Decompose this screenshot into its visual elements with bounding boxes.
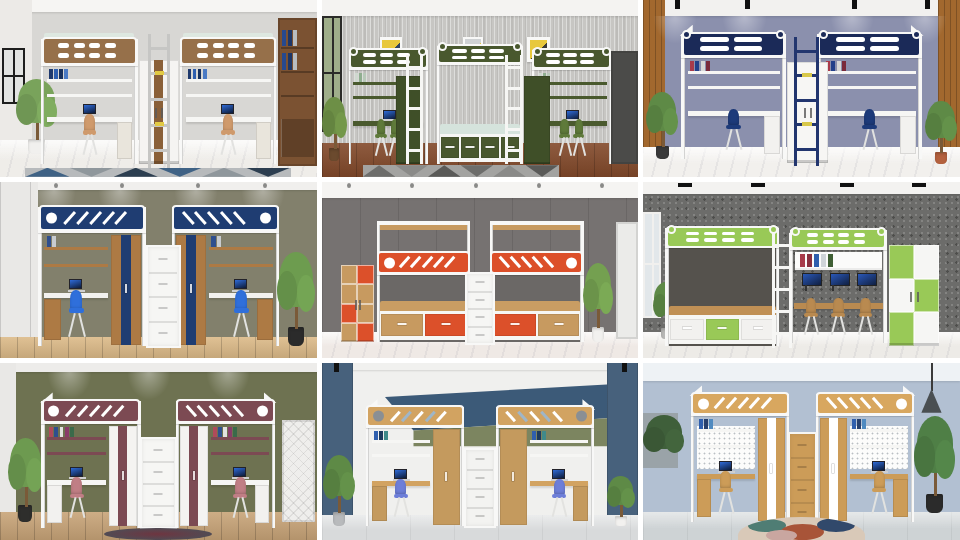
guard-slat <box>471 56 485 60</box>
ceiling-light-bar <box>751 183 765 187</box>
guard-slat <box>58 43 69 48</box>
rug-triangle <box>69 168 113 177</box>
stair-drawers <box>466 450 494 526</box>
guard-slat <box>401 410 412 421</box>
bed-guard-panel <box>492 253 581 272</box>
plant-pot <box>935 152 948 165</box>
bed-rail <box>176 421 276 424</box>
desk-cabinet <box>900 116 916 154</box>
guard-slat <box>546 53 559 57</box>
chair-back <box>223 114 234 132</box>
ceiling-light-bar <box>840 183 854 187</box>
stair-handle <box>154 471 163 473</box>
chair-leg <box>862 129 869 150</box>
potted-plant <box>643 415 684 475</box>
book-spine <box>217 236 221 247</box>
chair-leg <box>389 137 396 156</box>
built-in-wardrobe <box>433 429 460 524</box>
bed-guard-panel <box>174 207 276 229</box>
book-spine <box>54 427 58 437</box>
book-spine <box>842 61 846 71</box>
guard-slat <box>76 211 89 225</box>
rug-triangle <box>25 168 69 177</box>
stair-handle <box>159 258 168 260</box>
guard-slat <box>88 405 100 418</box>
shelf-line <box>281 95 314 97</box>
wardrobe-door <box>341 265 358 284</box>
loft-bed-unit <box>41 401 141 527</box>
built-in-wardrobe <box>758 418 785 521</box>
potted-plant <box>925 101 957 165</box>
ceiling-spotlight <box>334 363 339 372</box>
bed-drawer <box>741 319 774 340</box>
drawer-handle <box>554 323 563 325</box>
chair-leg <box>561 497 568 517</box>
plant-foliage <box>914 436 935 477</box>
guard-slat <box>213 53 224 58</box>
guard-slat <box>700 46 729 51</box>
book-spine <box>800 254 805 267</box>
lamp-cord <box>931 363 933 390</box>
guard-slat <box>74 43 85 48</box>
guard-slat <box>734 46 763 51</box>
laptop-screen <box>221 104 234 114</box>
hutch-shelf <box>47 79 132 82</box>
guard-slat <box>89 53 100 58</box>
hutch-shelf <box>47 452 106 455</box>
bed-drawer <box>425 314 467 336</box>
ladder-rung <box>406 128 423 131</box>
laptop-screen <box>233 467 246 477</box>
ladder-rung <box>505 87 522 90</box>
chair-back <box>235 290 247 309</box>
guard-slat <box>197 405 209 418</box>
book-spine <box>203 69 207 79</box>
render-thumbnail-8 <box>322 363 639 540</box>
book-spine <box>49 427 53 437</box>
bed-rail <box>377 272 470 275</box>
book-spine <box>542 431 546 440</box>
guard-slat <box>580 53 593 57</box>
door <box>616 222 638 339</box>
plant-foliage <box>621 488 635 508</box>
book-spine <box>282 53 286 69</box>
chair-leg <box>382 137 389 156</box>
stair-handle <box>154 449 163 451</box>
book-spine <box>831 61 835 71</box>
chair-back <box>575 119 584 135</box>
rug-triangle <box>246 168 290 177</box>
drawer-handle <box>441 323 450 325</box>
shelf-line <box>281 47 314 49</box>
bed-guard-panel <box>44 401 139 421</box>
guard-slat <box>105 43 116 48</box>
chair-back <box>70 290 82 309</box>
bed-drawer <box>481 137 499 159</box>
bed-rail <box>790 247 887 250</box>
chair-back <box>395 479 406 496</box>
chair-leg <box>735 129 742 150</box>
guard-slat <box>541 410 552 421</box>
potted-plant <box>583 263 613 343</box>
guard-slat <box>686 232 699 236</box>
loft-bed-unit <box>790 230 887 343</box>
built-in-wardrobe <box>111 235 141 345</box>
book-spine <box>828 254 833 267</box>
book-spine <box>233 427 237 437</box>
loft-bed-unit <box>665 228 779 345</box>
stair-drawers <box>148 247 179 346</box>
stair-step-line <box>149 296 178 298</box>
bed-guard-panel <box>820 34 919 55</box>
guard-slat <box>529 410 540 421</box>
guard-slat <box>506 410 517 421</box>
bed-rail <box>817 55 921 58</box>
guard-slat <box>854 240 865 244</box>
drawer-handle <box>485 146 494 148</box>
stair-step-line <box>149 321 178 323</box>
hutch-shelf <box>211 437 270 440</box>
guard-ring <box>819 30 828 39</box>
ladder-rung <box>406 107 423 110</box>
bed-frame-post <box>377 221 380 342</box>
chair-leg <box>804 316 811 335</box>
guard-slat <box>854 233 865 237</box>
chair-seat <box>726 125 741 129</box>
guard-slat <box>700 37 729 42</box>
book-spine <box>837 61 841 71</box>
book-spine <box>852 419 856 429</box>
guard-slat <box>220 211 233 225</box>
plant-pot <box>18 505 32 522</box>
chair-seat <box>552 494 566 498</box>
guard-slat <box>563 60 576 64</box>
chair-leg <box>573 137 580 156</box>
plant-pot <box>333 512 346 526</box>
ladder <box>794 37 819 166</box>
guard-slat <box>686 238 699 242</box>
stair-step-line <box>791 502 814 504</box>
plant-trunk <box>934 471 937 496</box>
ladder-rung <box>794 148 819 151</box>
book-spine <box>706 61 710 71</box>
guard-circle <box>384 257 395 268</box>
chair-leg <box>233 313 241 336</box>
plant-foliage <box>340 472 355 500</box>
wardrobe <box>889 245 940 346</box>
chair-leg <box>718 492 725 514</box>
chair-seat <box>719 488 733 492</box>
ladder-rung <box>148 98 170 101</box>
book-spine <box>532 431 536 440</box>
book-spine <box>709 419 713 429</box>
render-thumbnail-3 <box>643 0 960 177</box>
render-thumbnail-7 <box>0 363 317 540</box>
stair-drawers <box>790 434 815 524</box>
book-spine <box>64 69 68 79</box>
book-spine <box>821 254 826 267</box>
guard-slat <box>546 60 559 64</box>
chair-leg <box>68 313 76 336</box>
book-spine <box>690 61 694 71</box>
plant-foliage <box>925 113 941 140</box>
stair-drawers <box>467 274 492 344</box>
guard-slat <box>436 410 447 421</box>
hutch-shelf <box>47 437 106 440</box>
stair-handle <box>154 514 163 516</box>
chair-leg <box>858 316 865 335</box>
guard-ring <box>912 30 921 39</box>
chair-leg <box>558 137 565 156</box>
guard-slat <box>181 211 194 225</box>
potted-plant <box>323 455 355 526</box>
render-thumbnail-2 <box>322 0 639 177</box>
plant-foliage <box>322 110 335 137</box>
guard-slat <box>65 405 77 418</box>
chair-leg <box>831 316 838 335</box>
hutch-shelf <box>530 440 588 443</box>
bed-drawer <box>381 314 423 336</box>
bed-rail <box>180 63 277 66</box>
guard-slat <box>543 256 555 269</box>
book-spine <box>695 61 699 71</box>
chair-back <box>860 298 871 314</box>
plant-pot <box>926 494 942 513</box>
book-spine <box>701 61 705 71</box>
desk-cabinet <box>372 486 387 522</box>
wardrobe-door <box>914 245 939 279</box>
bed-drawer <box>670 319 703 340</box>
guard-slat <box>823 240 834 244</box>
plant-foliage <box>323 469 339 499</box>
bed-base <box>493 311 580 340</box>
stair-handle <box>475 316 484 318</box>
bed-drawer <box>441 137 459 159</box>
guard-slat <box>517 410 528 421</box>
chair-seat <box>234 308 249 313</box>
stair-handle <box>475 299 484 301</box>
loft-bed-unit <box>41 39 138 164</box>
bed-mattress <box>669 306 775 315</box>
guard-slat <box>228 53 239 58</box>
book-spine <box>537 431 541 440</box>
chair-leg <box>221 134 228 155</box>
stair-handle <box>475 477 484 479</box>
guard-slat <box>738 397 749 409</box>
ladder <box>406 55 423 165</box>
stair-step-line <box>143 461 174 463</box>
ceiling-spotlight <box>745 0 750 9</box>
chair-back <box>833 298 844 314</box>
chair-leg <box>872 492 879 514</box>
cabinet-doors <box>281 119 314 158</box>
bed-guard-panel <box>668 228 776 245</box>
chair-leg <box>78 497 85 518</box>
ladder-step-accent <box>155 122 164 126</box>
stair-handle <box>475 458 484 460</box>
guard-slat <box>807 240 818 244</box>
bed-guard-panel <box>684 34 783 55</box>
bed-mattress <box>380 301 467 311</box>
ladder-step-accent <box>802 73 812 77</box>
bed-guard-panel <box>44 39 136 63</box>
guard-slat <box>232 405 244 418</box>
ceiling-light-bar <box>912 183 926 187</box>
stair-step-line <box>143 483 174 485</box>
chair-leg <box>69 497 76 518</box>
built-in-wardrobe <box>109 426 137 526</box>
potted-plant <box>277 252 315 346</box>
laptop-screen <box>83 104 96 114</box>
chair-leg <box>867 316 874 335</box>
book-spine <box>59 69 63 79</box>
plant-pot <box>288 327 303 346</box>
monitor-stand <box>805 285 807 292</box>
rug-triangle <box>395 165 428 176</box>
bed-rail <box>816 413 914 416</box>
chair-back <box>377 119 386 135</box>
guard-slat <box>213 43 224 48</box>
hutch-shelf <box>372 454 430 457</box>
plant-foliage <box>935 440 955 479</box>
chair-leg <box>840 316 847 335</box>
guard-slat <box>722 238 735 242</box>
ladder-rung <box>505 128 522 131</box>
desk-cabinet <box>764 116 780 154</box>
bed-guard-panel <box>693 394 786 413</box>
loft-bed-unit <box>172 207 280 346</box>
bed-drawer <box>706 319 739 340</box>
laptop-screen <box>872 461 885 471</box>
chair-seat <box>69 308 84 313</box>
stair-step-line <box>467 507 493 509</box>
guard-slat <box>209 405 221 418</box>
ladder-rung <box>505 149 522 152</box>
hutch-shelf <box>850 429 908 432</box>
stair-step-line <box>467 488 493 490</box>
guard-ring <box>667 225 676 234</box>
stair-handle <box>475 515 484 517</box>
book-spine <box>282 30 286 46</box>
guard-ring <box>877 227 886 236</box>
ceiling-spotlight <box>675 0 680 9</box>
wardrobe-handle <box>359 300 361 310</box>
book-spine <box>293 53 297 69</box>
chair-leg <box>813 316 820 335</box>
stair-handle <box>475 496 484 498</box>
bed-guard-panel <box>178 401 273 421</box>
guard-slat <box>471 49 485 53</box>
book-spine <box>47 236 51 247</box>
guard-slat <box>244 53 255 58</box>
guard-slat <box>363 53 376 57</box>
wall-light-glow <box>47 372 91 400</box>
hutch-shelf <box>209 264 273 267</box>
book-spine <box>211 236 215 247</box>
built-in-wardrobe <box>176 235 206 345</box>
book-spine <box>379 431 383 440</box>
guard-slat <box>221 405 233 418</box>
rug-triangle <box>114 168 158 177</box>
guard-slat <box>726 397 737 409</box>
ceiling-spotlight <box>852 0 857 9</box>
chair-leg <box>394 497 401 517</box>
book-spine <box>218 427 222 437</box>
hutch-shelf <box>824 71 916 74</box>
desk-cabinet <box>44 299 60 341</box>
bed-rail <box>496 425 594 428</box>
chair-back <box>728 109 739 127</box>
plant-foliage <box>663 108 678 135</box>
drawer-handle <box>397 323 406 325</box>
rug <box>363 165 559 176</box>
hutch-shelf <box>44 247 108 250</box>
built-in-wardrobe <box>180 426 208 526</box>
laptop-screen <box>69 279 82 289</box>
window-mullion <box>13 48 15 105</box>
book-spine <box>188 69 192 79</box>
chair-leg <box>243 313 251 336</box>
wardrobe-handle <box>917 292 919 302</box>
plant-foliage <box>583 279 599 312</box>
book-spine <box>193 69 197 79</box>
rug-triangle <box>526 165 559 176</box>
bed-guard-panel <box>41 207 143 229</box>
chair-leg <box>375 137 382 156</box>
guard-circle <box>46 213 57 224</box>
book-spine <box>54 69 58 79</box>
stair-drawers <box>142 439 176 526</box>
chair-back <box>554 479 565 496</box>
render-thumbnail-5 <box>322 182 639 359</box>
room-ceiling <box>322 0 639 16</box>
book-spine <box>213 427 217 437</box>
book-spine <box>198 69 202 79</box>
guard-slat <box>105 53 116 58</box>
guard-slat <box>489 49 503 53</box>
bed-rail <box>41 421 141 424</box>
wardrobe-handle <box>832 464 834 473</box>
bed-rail <box>38 229 146 232</box>
guard-slat <box>233 211 246 225</box>
bed-drawer <box>494 314 536 336</box>
guard-circle <box>698 398 709 409</box>
book-spine <box>384 431 388 440</box>
guard-slat <box>563 53 576 57</box>
wardrobe-handle <box>122 471 124 480</box>
guard-slat <box>741 238 754 242</box>
rug-triangle <box>202 168 246 177</box>
shelf-line <box>281 71 314 73</box>
guard-slat <box>870 37 899 42</box>
ladder-rung <box>406 87 423 90</box>
guard-slat <box>452 56 466 60</box>
chair-back <box>720 471 731 489</box>
book-spine <box>374 431 378 440</box>
plant-foliage <box>643 427 664 452</box>
hutch-shelf <box>697 429 755 432</box>
hutch-shelf <box>697 445 755 448</box>
plant-foliage <box>665 429 685 453</box>
render-thumbnail-4 <box>0 182 317 359</box>
hutch-shelf <box>850 445 908 448</box>
plant-trunk <box>36 121 39 140</box>
desk-cabinet <box>573 486 588 522</box>
stair-handle <box>154 493 163 495</box>
guard-slat <box>380 60 393 64</box>
room-ceiling <box>322 182 639 198</box>
bed-rail <box>665 246 779 249</box>
